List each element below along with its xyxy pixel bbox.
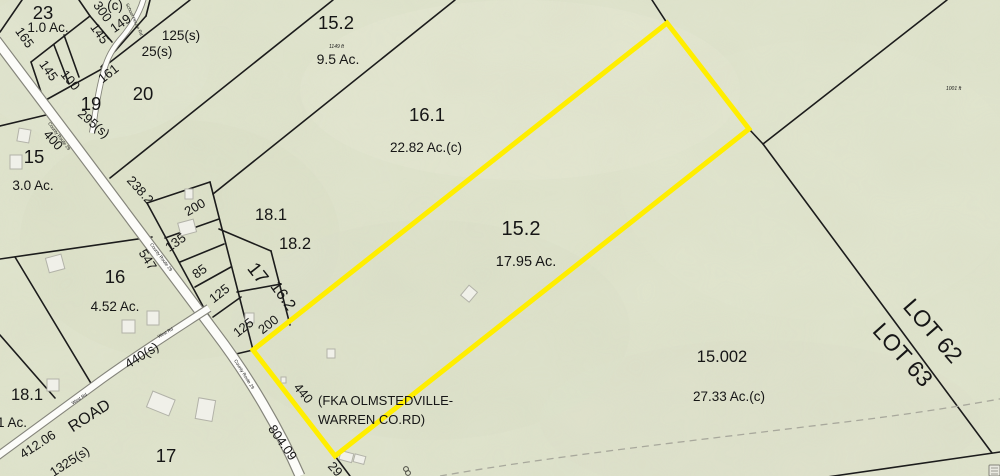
svg-text:1.0 Ac.: 1.0 Ac. bbox=[27, 20, 68, 35]
svg-text:18.2: 18.2 bbox=[279, 235, 311, 253]
svg-text:125(s): 125(s) bbox=[162, 28, 200, 43]
svg-text:16.1: 16.1 bbox=[409, 104, 445, 125]
svg-text:15: 15 bbox=[24, 146, 45, 167]
svg-text:1 Ac.: 1 Ac. bbox=[0, 415, 27, 430]
svg-text:1149 ft: 1149 ft bbox=[329, 44, 345, 50]
svg-text:18.1: 18.1 bbox=[255, 206, 287, 224]
svg-text:15.002: 15.002 bbox=[697, 348, 747, 366]
svg-text:18.1: 18.1 bbox=[11, 386, 43, 404]
svg-text:9.5 Ac.: 9.5 Ac. bbox=[317, 51, 360, 67]
svg-text:(FKA OLMSTEDVILLE-: (FKA OLMSTEDVILLE- bbox=[318, 393, 453, 408]
svg-text:16: 16 bbox=[105, 266, 126, 287]
svg-text:3.0 Ac.: 3.0 Ac. bbox=[12, 178, 53, 193]
svg-text:15.2: 15.2 bbox=[318, 12, 354, 33]
svg-text:25(s): 25(s) bbox=[142, 44, 173, 59]
svg-text:4.52 Ac.: 4.52 Ac. bbox=[91, 299, 140, 314]
svg-text:17.95 Ac.: 17.95 Ac. bbox=[496, 254, 556, 270]
svg-text:17: 17 bbox=[156, 445, 177, 466]
svg-text:20: 20 bbox=[133, 83, 154, 104]
svg-text:27.33 Ac.(c): 27.33 Ac.(c) bbox=[693, 389, 765, 404]
svg-text:22.82 Ac.(c): 22.82 Ac.(c) bbox=[390, 140, 462, 155]
svg-text:WARREN CO.RD): WARREN CO.RD) bbox=[318, 412, 425, 427]
svg-text:15.2: 15.2 bbox=[502, 218, 541, 240]
svg-text:1001 ft: 1001 ft bbox=[946, 86, 962, 92]
